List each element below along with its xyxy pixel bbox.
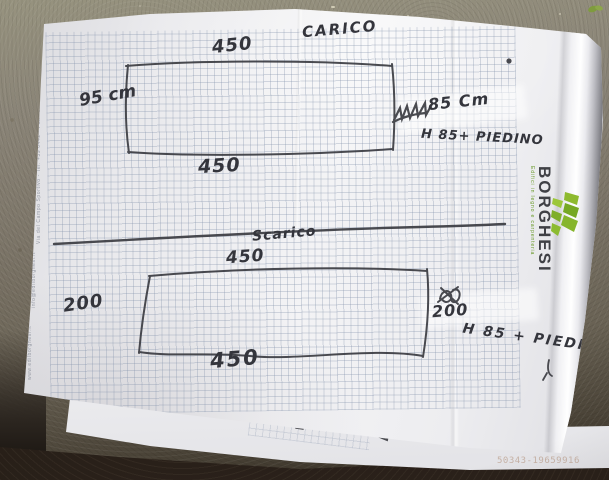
label-height-right-2: 200: [431, 300, 469, 321]
photo-of-sketch: Via del Campo Sportivo - Tel. +39 0442 -…: [0, 0, 609, 480]
stray-hook-mark: [543, 360, 552, 380]
photo-watermark: 50343-19659916: [497, 456, 580, 466]
label-width-bottom-2: 450: [209, 345, 261, 373]
label-width-top-1: 450: [211, 33, 254, 58]
label-width-top-2: 450: [225, 246, 265, 269]
ink-dot: [507, 59, 510, 62]
scribble-max: [393, 103, 432, 122]
rect2-outline: [139, 268, 428, 357]
leaf-debris-icon: [588, 3, 604, 15]
label-width-bottom-1: 450: [197, 154, 241, 178]
rect1-outline: [126, 62, 395, 155]
